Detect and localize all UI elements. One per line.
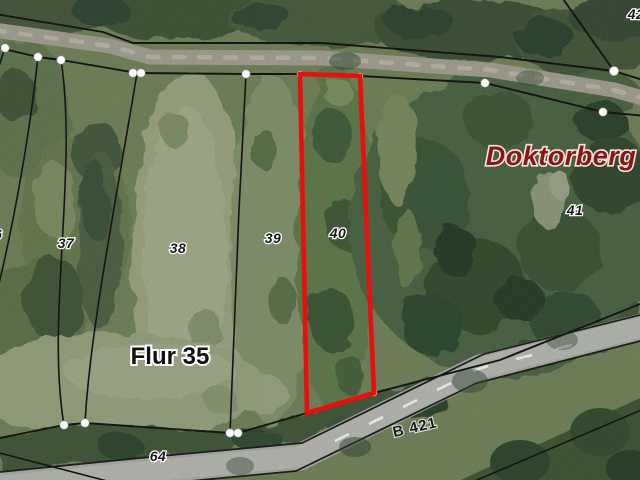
parcel-label-42: 42	[627, 6, 640, 22]
place-name-label: Doktorberg	[486, 141, 637, 171]
parcel-label-37: 37	[58, 235, 75, 251]
parcel-label-39: 39	[265, 230, 282, 246]
parcel-label-41: 41	[566, 202, 584, 218]
parcel-label-40: 40	[329, 225, 347, 241]
parcel-label-38: 38	[170, 240, 187, 256]
parcel-label-64: 64	[150, 448, 167, 464]
parcel-label-36: 36	[0, 226, 2, 242]
flur-label: Flur 35	[131, 343, 210, 370]
map-canvas[interactable]: 36 37 38 39 40 41 42 64 Flur 35 Doktorbe…	[0, 0, 640, 480]
cadastral-map-view: 36 37 38 39 40 41 42 64 Flur 35 Doktorbe…	[0, 0, 640, 480]
